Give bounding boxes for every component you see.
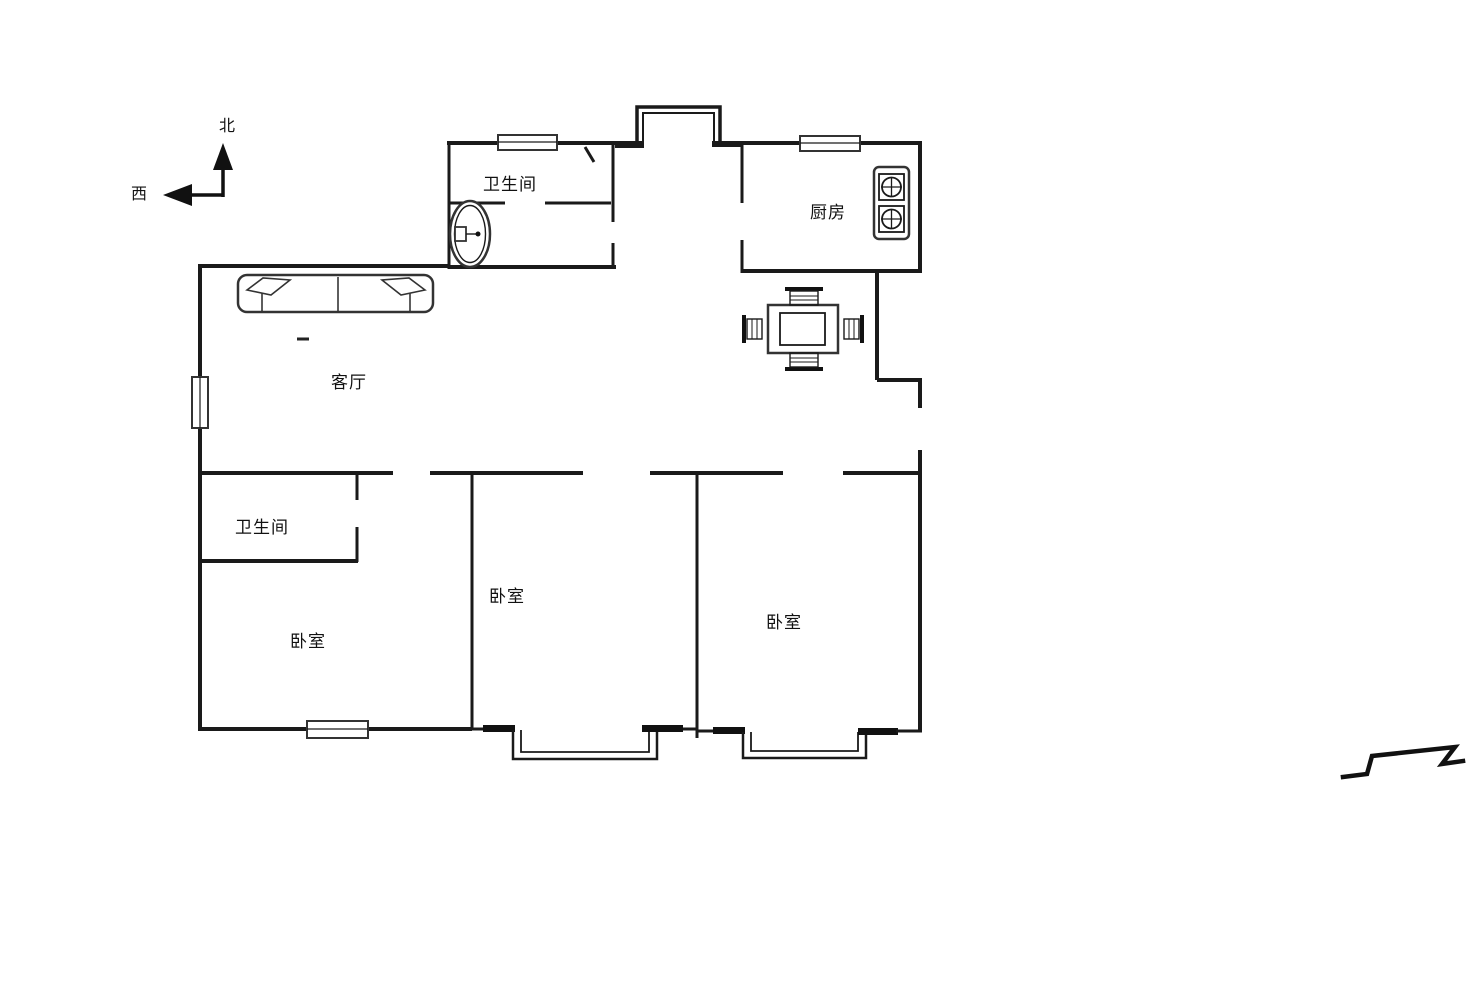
room-label-living-room: 客厅 xyxy=(331,373,367,393)
compass: 北 西 xyxy=(131,116,235,206)
dining-table xyxy=(744,289,862,369)
room-label-kitchen: 厨房 xyxy=(810,203,846,223)
compass-north-arrow-head xyxy=(213,143,233,170)
entry-alcove xyxy=(615,107,742,146)
compass-west-label: 西 xyxy=(131,184,147,203)
compass-west-arrow-head xyxy=(163,184,192,206)
room-label-bathroom-top: 卫生间 xyxy=(483,175,537,195)
bay-window-bedroom-middle xyxy=(472,725,697,759)
window-bedroom-left xyxy=(307,721,368,738)
window-living-left xyxy=(192,377,208,428)
room-label-bedroom-left: 卧室 xyxy=(290,632,326,652)
door-swing-mark xyxy=(585,147,594,162)
bay-window-bedroom-right xyxy=(697,727,922,758)
bathtub xyxy=(450,201,490,267)
floor-plan-canvas: 北 西 xyxy=(0,0,1479,1000)
chair xyxy=(844,315,862,343)
stove xyxy=(874,167,909,239)
room-label-bedroom-right: 卧室 xyxy=(766,613,802,633)
room-label-bedroom-middle: 卧室 xyxy=(489,587,525,607)
interior-walls-bedrooms xyxy=(200,473,920,738)
faucet-icon xyxy=(455,227,466,241)
window-kitchen xyxy=(800,136,860,151)
room-label-bathroom-lower: 卫生间 xyxy=(235,518,289,538)
sofa xyxy=(238,275,433,312)
floor-plan-drawing: 北 西 xyxy=(0,0,1479,1000)
zigzag-mark xyxy=(1343,747,1463,777)
compass-north-label: 北 xyxy=(219,116,235,135)
chair xyxy=(785,289,823,305)
chair xyxy=(785,353,823,369)
chair xyxy=(744,315,762,343)
window-bathroom-top xyxy=(498,135,557,150)
